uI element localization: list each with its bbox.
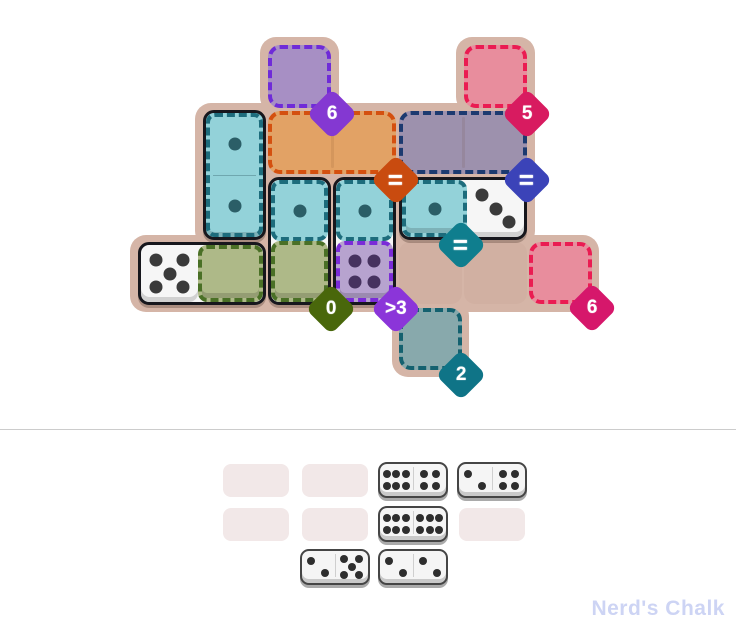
domino-half-teal-region xyxy=(271,180,328,241)
pip xyxy=(355,555,363,563)
domino-half xyxy=(493,464,526,496)
pip xyxy=(499,470,507,478)
watermark-text: Nerd's Chalk xyxy=(591,597,725,621)
domino-divider xyxy=(213,175,256,176)
pip xyxy=(426,526,434,534)
tray-slot-empty xyxy=(223,464,289,497)
pip xyxy=(464,470,472,478)
pip xyxy=(420,470,428,478)
pip xyxy=(416,514,424,522)
domino-half xyxy=(414,464,447,496)
pip xyxy=(349,254,362,267)
pip xyxy=(399,569,407,577)
pip xyxy=(402,470,410,478)
tray-domino-2-2[interactable] xyxy=(378,549,448,585)
domino-half xyxy=(380,508,413,540)
pip xyxy=(502,215,515,228)
pip xyxy=(150,281,163,294)
tray-domino-2-5[interactable] xyxy=(300,549,370,585)
board-domino-1-0[interactable] xyxy=(268,177,331,305)
pip xyxy=(392,526,400,534)
pip xyxy=(432,470,440,478)
domino-half xyxy=(206,113,263,175)
pip xyxy=(416,526,424,534)
pip xyxy=(402,482,410,490)
pip xyxy=(385,557,393,565)
tray-slot-empty xyxy=(302,464,368,497)
pip xyxy=(419,557,427,565)
tray-slot-empty xyxy=(302,508,368,541)
pip xyxy=(511,470,519,478)
pip xyxy=(511,482,519,490)
pip xyxy=(428,202,441,215)
pip xyxy=(340,555,348,563)
pip xyxy=(355,571,363,579)
tray-domino-6-6[interactable] xyxy=(378,506,448,542)
pip xyxy=(383,470,391,478)
pip xyxy=(402,526,410,534)
pip xyxy=(499,482,507,490)
pip xyxy=(367,276,380,289)
pip xyxy=(176,253,189,266)
pip xyxy=(489,202,502,215)
pip xyxy=(228,138,241,151)
pip xyxy=(340,571,348,579)
pip xyxy=(349,276,362,289)
tray-slot-empty xyxy=(459,508,525,541)
pip xyxy=(358,204,371,217)
domino-half-purple-region xyxy=(336,241,393,302)
pip xyxy=(293,204,306,217)
domino-half xyxy=(302,551,335,583)
domino-half-green-region xyxy=(198,245,263,302)
pip xyxy=(383,482,391,490)
pip xyxy=(478,482,486,490)
pip xyxy=(435,514,443,522)
pip xyxy=(476,189,489,202)
section-divider xyxy=(0,429,736,430)
domino-half xyxy=(380,464,413,496)
tray-domino-6-4[interactable] xyxy=(378,462,448,498)
game-screen: 6 5 = = = 0 >3 6 2 Nerd's Chalk xyxy=(0,0,736,633)
pip xyxy=(433,569,441,577)
tray-domino-2-4[interactable] xyxy=(457,462,527,498)
domino-half xyxy=(414,508,447,540)
pip xyxy=(348,563,356,571)
pip xyxy=(383,526,391,534)
pip xyxy=(228,200,241,213)
pip xyxy=(383,514,391,522)
pip xyxy=(435,526,443,534)
domino-half xyxy=(459,464,492,496)
pip xyxy=(426,514,434,522)
pip xyxy=(402,514,410,522)
domino-half xyxy=(414,551,447,583)
domino-half xyxy=(380,551,413,583)
domino-half-green-region xyxy=(271,241,328,302)
pip xyxy=(321,569,329,577)
pip xyxy=(150,253,163,266)
domino-half xyxy=(206,175,263,237)
tray-slot-empty xyxy=(223,508,289,541)
pip xyxy=(392,482,400,490)
pip xyxy=(307,557,315,565)
pip xyxy=(392,514,400,522)
pip xyxy=(163,267,176,280)
board-domino-5-0[interactable] xyxy=(138,242,266,305)
domino-half xyxy=(141,245,198,302)
pip xyxy=(432,482,440,490)
pip xyxy=(420,482,428,490)
pip xyxy=(367,254,380,267)
pip xyxy=(392,470,400,478)
pip xyxy=(176,281,189,294)
board-domino-1-1[interactable] xyxy=(203,110,266,240)
domino-half xyxy=(336,551,369,583)
